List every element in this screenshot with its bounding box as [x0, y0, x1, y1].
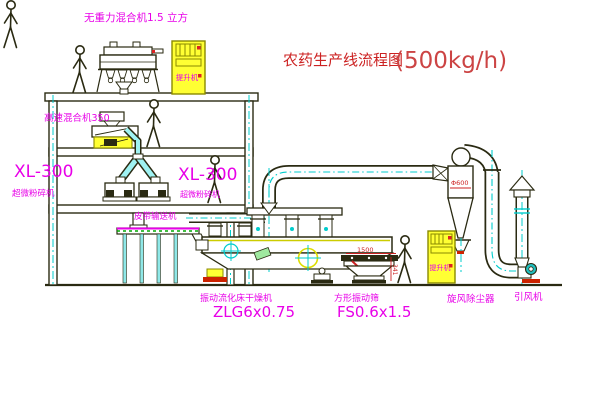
red-indicator-dot	[197, 46, 201, 50]
gravity-free-mixer	[97, 42, 163, 94]
red-indicator-dot	[449, 264, 453, 268]
screen-model-label: FS0.6x1.5	[337, 303, 411, 321]
conveyor-label: 皮带输送机	[134, 211, 177, 222]
bucket-elevator-bottom: 提升机	[428, 231, 455, 283]
mixer-mid-label: 高速混合机350	[44, 112, 110, 124]
elevator-bottom-label: 提升机	[430, 263, 451, 272]
fan-label: 引风机	[514, 291, 543, 303]
red-indicator-dot	[198, 74, 202, 78]
process-flow-diagram: 提升机	[0, 0, 600, 403]
red-indicator-dot	[448, 236, 452, 240]
crusher-units	[103, 154, 170, 201]
cyclone-diameter-dim: Φ600	[451, 179, 469, 187]
crusher-left-model-label: XL-300	[14, 162, 73, 182]
cyclone-label: 旋风除尘器	[447, 293, 495, 305]
elevator-top-label: 提升机	[176, 72, 199, 82]
diagram-canvas: 提升机	[0, 0, 600, 403]
bucket-elevator-top: 提升机	[172, 41, 205, 94]
belt-conveyor	[117, 228, 208, 283]
diagram-title: 农药生产线流程图	[283, 51, 403, 69]
diagram-capacity: (500kg/h)	[395, 48, 507, 74]
red-indicator-dot	[152, 50, 155, 53]
dryer-model-label: ZLG6x0.75	[213, 303, 295, 321]
mixer-top-label: 无重力混合机1.5 立方	[84, 11, 188, 24]
crusher-right-model-label: XL-300	[178, 165, 237, 185]
screen-length-dim: 1500	[357, 246, 374, 254]
vibrating-screen	[341, 254, 398, 284]
crusher-left-name-label: 超微粉碎机	[12, 188, 55, 199]
crusher-right-name-label: 超微粉碎机	[180, 189, 220, 199]
screen-height-dim: 341	[391, 264, 398, 276]
